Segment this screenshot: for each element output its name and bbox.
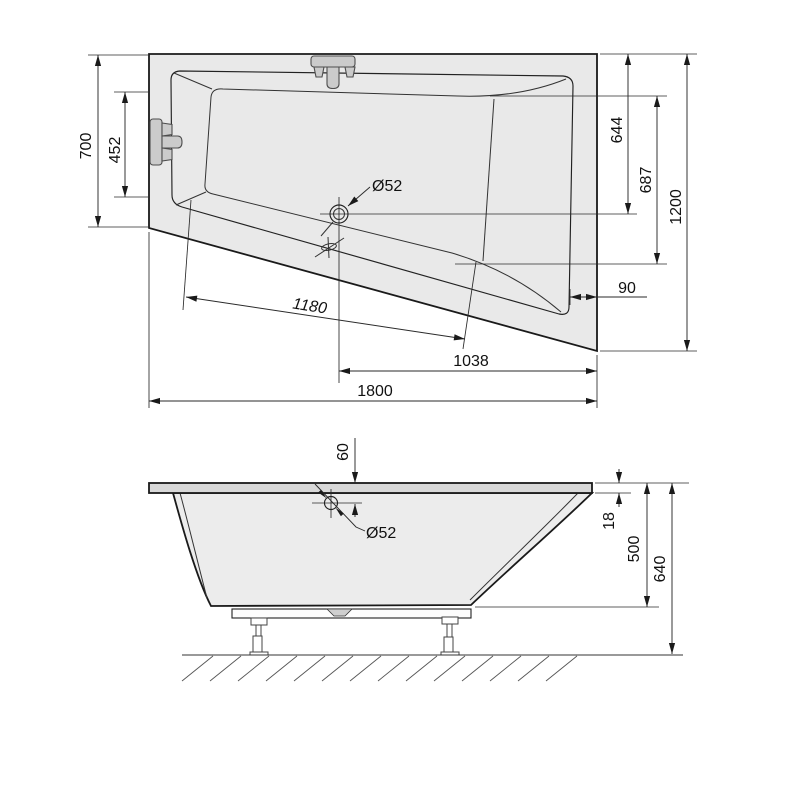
inner-left-label: 452 <box>107 137 124 164</box>
drain-from-right-label: 1038 <box>453 353 489 370</box>
right-height-label: 1200 <box>668 189 685 225</box>
rim-width-label: 90 <box>618 280 636 297</box>
drain-diameter-label: Ø52 <box>372 178 402 195</box>
adjustable-foot-right <box>441 617 459 655</box>
support-frame <box>232 609 471 618</box>
left-height-label: 700 <box>78 133 95 160</box>
total-height-label: 640 <box>652 556 669 583</box>
dim-total-height: 640 <box>652 483 672 654</box>
dim-drain-from-top: 644 <box>609 54 628 214</box>
drain-from-top-label: 644 <box>609 117 626 144</box>
ground-hatch <box>182 655 683 681</box>
tub-outer-contour <box>149 54 597 351</box>
inner-right-label: 687 <box>638 167 655 194</box>
adjustable-foot-left <box>250 618 268 655</box>
rim-bar <box>149 483 592 493</box>
inner-diagonal-label: 1180 <box>291 296 328 318</box>
drain-offset-label: 60 <box>335 443 352 461</box>
rim-thickness-label: 18 <box>601 512 618 530</box>
body-depth-label: 500 <box>626 536 643 563</box>
top-view: Ø52 700 452 <box>78 54 697 408</box>
side-drain-diameter-label: Ø52 <box>366 525 396 542</box>
bathtub-technical-drawing: Ø52 700 452 <box>0 0 800 800</box>
dim-drain-from-right: 1038 <box>339 353 597 371</box>
dim-right-height: 1200 <box>600 54 697 351</box>
tub-body-profile <box>173 493 592 606</box>
dim-inner-left: 452 <box>107 92 148 197</box>
side-view: Ø52 60 18 500 640 <box>149 438 689 681</box>
dim-rim-thickness: 18 <box>595 469 689 530</box>
total-length-label: 1800 <box>357 383 393 400</box>
